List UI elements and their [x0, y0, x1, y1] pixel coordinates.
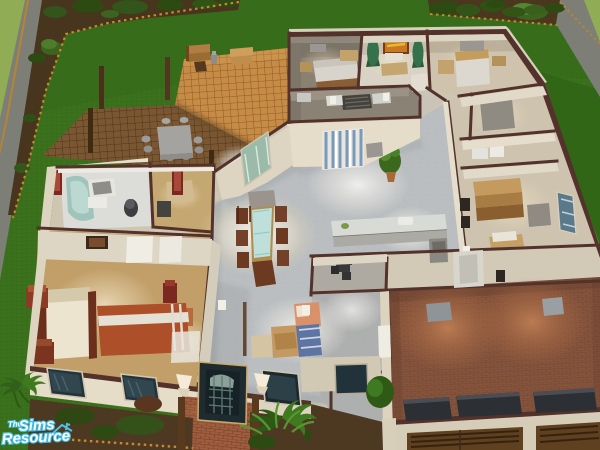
svg-text:Resource: Resource [1, 427, 70, 448]
